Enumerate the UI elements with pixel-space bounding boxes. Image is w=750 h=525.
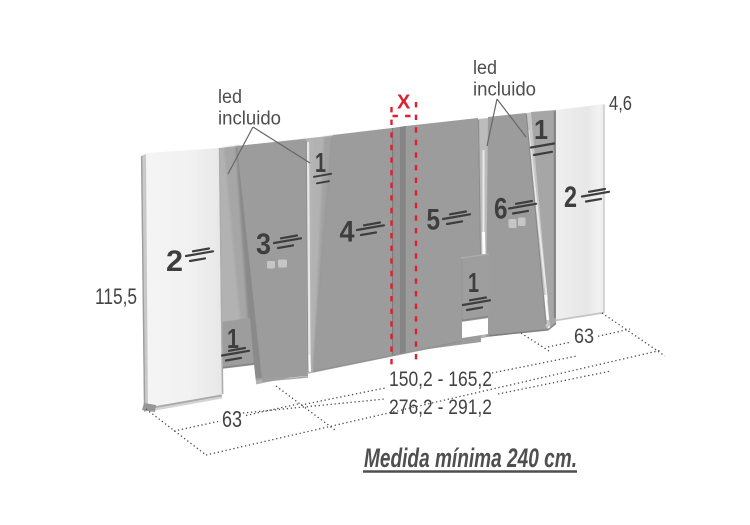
svg-text:276,2 - 291,2: 276,2 - 291,2 (389, 396, 492, 419)
svg-text:led: led (218, 87, 242, 108)
svg-text:4: 4 (340, 216, 355, 249)
svg-text:1: 1 (534, 114, 548, 145)
svg-text:115,5: 115,5 (95, 284, 137, 309)
svg-text:63: 63 (574, 325, 594, 348)
svg-text:3: 3 (256, 228, 271, 261)
svg-text:1: 1 (468, 267, 479, 298)
svg-text:2: 2 (564, 181, 577, 214)
svg-text:5: 5 (427, 204, 441, 237)
svg-text:4,6: 4,6 (609, 93, 632, 115)
svg-text:6: 6 (494, 192, 508, 225)
svg-text:63: 63 (222, 406, 242, 432)
svg-text:X: X (397, 92, 411, 114)
svg-text:led: led (473, 58, 497, 79)
svg-text:Medida mínima 240 cm.: Medida mínima 240 cm. (364, 443, 577, 473)
svg-text:150,2 - 165,2: 150,2 - 165,2 (389, 368, 492, 391)
svg-text:incluido: incluido (218, 109, 281, 130)
svg-text:1: 1 (315, 147, 326, 178)
svg-text:2: 2 (166, 245, 183, 278)
svg-text:incluido: incluido (473, 80, 536, 101)
